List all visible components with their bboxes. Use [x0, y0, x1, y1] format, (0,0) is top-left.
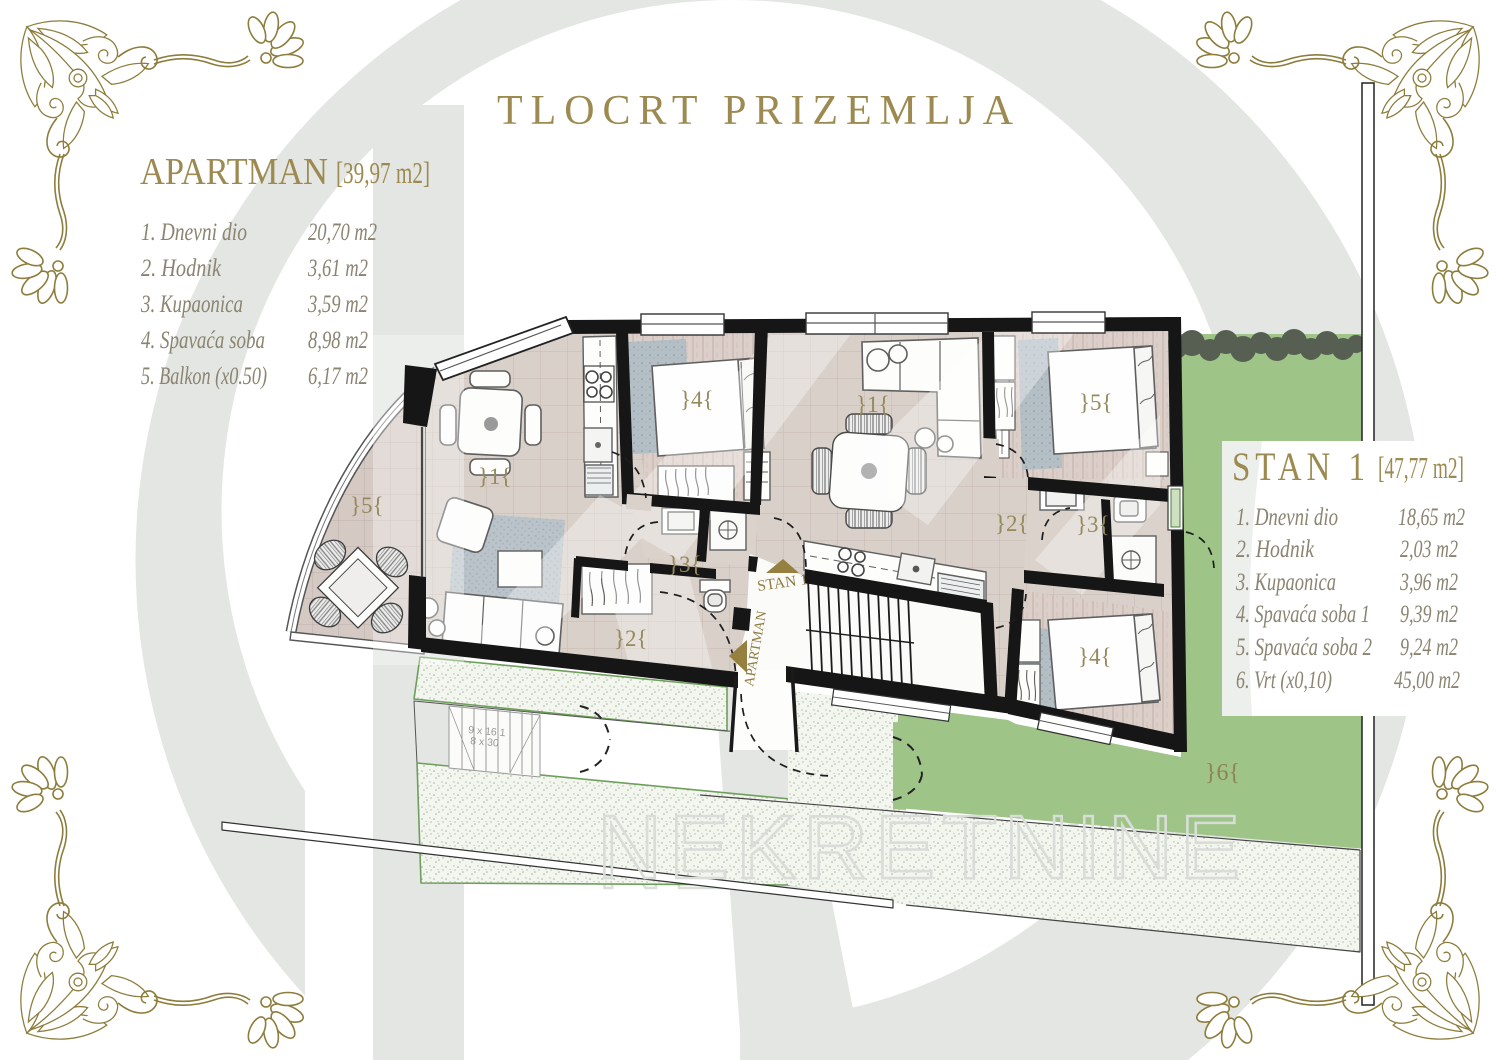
svg-text:1. Dnevni dio: 1. Dnevni dio [1236, 504, 1338, 531]
svg-text:4. Spavaća soba: 4. Spavaća soba [141, 327, 265, 354]
svg-text:5. Balkon (x0.50): 5. Balkon (x0.50) [141, 363, 267, 390]
svg-text:8,98 m2: 8,98 m2 [308, 327, 368, 354]
svg-text:2. Hodnik: 2. Hodnik [141, 255, 222, 282]
svg-text:}2{: }2{ [614, 626, 648, 651]
svg-text:6. Vrt (x0,10): 6. Vrt (x0,10) [1236, 667, 1332, 694]
svg-text:5. Spavaća soba 2: 5. Spavaća soba 2 [1236, 634, 1372, 661]
svg-text:1. Dnevni dio: 1. Dnevni dio [141, 219, 247, 246]
svg-text:3,61 m2: 3,61 m2 [307, 255, 368, 282]
svg-text:3,59 m2: 3,59 m2 [307, 291, 368, 318]
svg-text:2. Hodnik: 2. Hodnik [1236, 536, 1315, 563]
svg-text:STAN 1: STAN 1 [1232, 444, 1370, 489]
svg-text:}5{: }5{ [1079, 390, 1113, 415]
svg-text:6,17 m2: 6,17 m2 [308, 363, 368, 390]
svg-text:TLOCRT PRIZEMLJA: TLOCRT PRIZEMLJA [497, 88, 1021, 134]
svg-text:45,00 m2: 45,00 m2 [1394, 667, 1460, 694]
svg-text:}1{: }1{ [478, 464, 512, 489]
svg-text:8 x 30: 8 x 30 [470, 735, 500, 749]
svg-text:NEKRETNINE: NEKRETNINE [597, 798, 1247, 898]
svg-text:}4{: }4{ [680, 387, 714, 412]
svg-text:}3{: }3{ [668, 552, 702, 577]
svg-text:}6{: }6{ [1205, 760, 1240, 786]
svg-text:9,24 m2: 9,24 m2 [1400, 634, 1458, 661]
svg-text:2,03 m2: 2,03 m2 [1400, 536, 1458, 563]
svg-text:3,96 m2: 3,96 m2 [1399, 569, 1458, 596]
svg-text:20,70 m2: 20,70 m2 [308, 219, 377, 246]
svg-text:}1{: }1{ [856, 392, 890, 417]
svg-text:4. Spavaća soba 1: 4. Spavaća soba 1 [1236, 601, 1370, 628]
svg-text:18,65 m2: 18,65 m2 [1398, 504, 1465, 531]
svg-text:}4{: }4{ [1078, 644, 1112, 669]
svg-text:}2{: }2{ [995, 511, 1029, 536]
svg-text:}3{: }3{ [1076, 512, 1110, 537]
svg-text:APARTMAN: APARTMAN [140, 151, 328, 193]
svg-text:3. Kupaonica: 3. Kupaonica [1235, 569, 1336, 596]
svg-text:[39,97 m2]: [39,97 m2] [336, 155, 430, 190]
svg-text:}5{: }5{ [350, 493, 384, 518]
svg-text:3. Kupaonica: 3. Kupaonica [140, 291, 243, 318]
svg-text:[47,77 m2]: [47,77 m2] [1378, 450, 1464, 485]
svg-text:9,39 m2: 9,39 m2 [1400, 601, 1458, 628]
